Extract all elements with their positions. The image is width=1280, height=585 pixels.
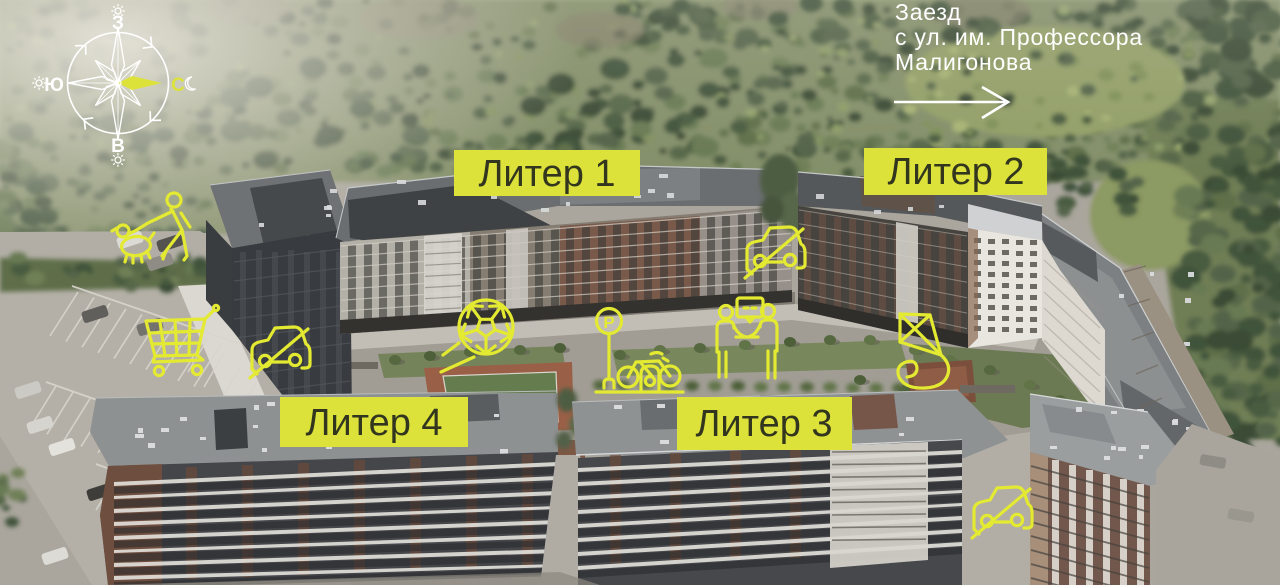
svg-text:Литер 3: Литер 3 <box>695 403 832 445</box>
svg-text:Литер 2: Литер 2 <box>887 151 1024 193</box>
svg-text:Заезд: Заезд <box>895 0 961 25</box>
svg-text:P: P <box>603 313 614 332</box>
svg-text:с ул. им. Профессора: с ул. им. Профессора <box>895 24 1143 50</box>
svg-text:С: С <box>171 75 185 96</box>
svg-text:Литер 1: Литер 1 <box>478 153 615 195</box>
svg-text:Литер 4: Литер 4 <box>305 402 442 444</box>
svg-text:Ю: Ю <box>44 75 64 96</box>
svg-text:Малигонова: Малигонова <box>895 49 1032 75</box>
